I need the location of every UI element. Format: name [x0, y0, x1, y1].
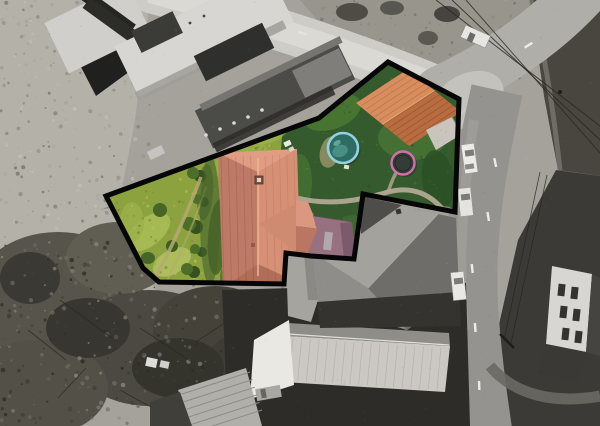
- speckle: [449, 53, 452, 56]
- speckle: [345, 111, 346, 112]
- speckle: [32, 211, 34, 213]
- speckle: [367, 22, 370, 25]
- speckle: [97, 300, 100, 303]
- speckle: [255, 145, 256, 146]
- small-tree: [141, 252, 155, 264]
- speckle: [412, 356, 414, 358]
- speckle: [378, 148, 380, 150]
- speckle: [439, 292, 441, 294]
- speckle: [152, 307, 156, 311]
- speckle: [431, 359, 432, 360]
- speckle: [60, 204, 62, 206]
- speckle: [109, 365, 111, 367]
- speckle: [68, 407, 73, 412]
- speckle: [28, 415, 32, 419]
- speckle: [518, 62, 519, 63]
- speckle: [461, 73, 462, 74]
- speckle: [138, 359, 140, 361]
- speckle: [589, 12, 591, 14]
- speckle: [316, 148, 317, 149]
- speckle: [391, 90, 393, 92]
- speckle: [98, 113, 101, 116]
- speckle: [125, 141, 126, 142]
- speckle: [394, 397, 395, 398]
- speckle: [515, 47, 517, 49]
- speckle: [48, 92, 51, 95]
- speckle: [135, 61, 136, 62]
- speckle: [9, 189, 11, 191]
- speckle: [157, 17, 158, 18]
- speckle: [210, 126, 212, 128]
- speckle: [270, 18, 271, 19]
- speckle: [275, 298, 277, 300]
- speckle: [273, 364, 274, 365]
- bush: [181, 263, 193, 275]
- speckle: [196, 225, 197, 226]
- speckle: [318, 338, 319, 339]
- speckle: [20, 70, 22, 72]
- speckle: [151, 324, 153, 326]
- speckle: [329, 175, 330, 176]
- speckle: [403, 39, 406, 42]
- speckle: [1, 368, 6, 373]
- speckle: [368, 185, 371, 188]
- speckle: [483, 193, 485, 195]
- speckle: [420, 156, 422, 158]
- speckle: [462, 22, 463, 23]
- speckle: [259, 311, 261, 313]
- aerial-photo: [0, 0, 600, 426]
- speckle: [73, 146, 75, 148]
- speckle: [212, 126, 214, 128]
- speckle: [108, 293, 112, 297]
- speckle: [375, 238, 376, 239]
- speckle: [572, 414, 573, 415]
- speckle: [86, 409, 89, 412]
- speckle: [458, 47, 459, 48]
- speckle: [157, 96, 158, 97]
- roof-vent: [189, 22, 192, 25]
- speckle: [333, 12, 335, 14]
- speckle: [123, 79, 127, 83]
- speckle: [226, 204, 227, 205]
- speckle: [13, 309, 16, 312]
- speckle: [169, 321, 172, 324]
- speckle: [484, 398, 486, 400]
- window: [557, 284, 565, 297]
- speckle: [169, 306, 171, 308]
- speckle: [18, 192, 22, 196]
- speckle: [447, 171, 449, 173]
- speckle: [94, 242, 98, 246]
- speckle: [26, 25, 28, 27]
- speckle: [317, 140, 320, 143]
- speckle: [268, 145, 270, 147]
- speckle: [4, 413, 7, 416]
- bush: [190, 244, 200, 254]
- speckle: [74, 129, 76, 131]
- speckle: [414, 181, 416, 183]
- speckle: [389, 40, 391, 42]
- speckle: [349, 167, 352, 170]
- speckle: [46, 204, 49, 207]
- speckle: [194, 295, 197, 298]
- speckle: [17, 22, 21, 26]
- speckle: [243, 33, 245, 35]
- aerial-photo-stage: [0, 0, 600, 426]
- speckle: [127, 265, 132, 270]
- speckle: [281, 160, 282, 161]
- speckle: [136, 125, 140, 129]
- speckle: [220, 350, 223, 353]
- speckle: [20, 35, 24, 39]
- speckle: [74, 281, 78, 285]
- speckle: [532, 159, 534, 161]
- speckle: [20, 176, 23, 179]
- speckle: [361, 67, 362, 68]
- speckle: [234, 135, 235, 136]
- speckle: [378, 2, 380, 4]
- speckle: [518, 291, 520, 293]
- speckle: [26, 254, 28, 256]
- speckle: [361, 89, 363, 91]
- speckle: [131, 272, 134, 275]
- speckle: [414, 270, 415, 271]
- speckle: [546, 242, 547, 243]
- speckle: [490, 4, 491, 5]
- speckle: [205, 288, 207, 290]
- speckle: [117, 176, 121, 180]
- speckle: [311, 114, 313, 116]
- speckle: [428, 21, 431, 24]
- speckle: [463, 31, 464, 32]
- speckle: [321, 287, 322, 288]
- speckle: [24, 73, 25, 74]
- speckle: [122, 183, 124, 185]
- speckle: [489, 315, 491, 317]
- speckle: [129, 96, 132, 99]
- speckle: [8, 345, 11, 348]
- speckle: [7, 97, 9, 99]
- speckle: [142, 141, 145, 144]
- speckle: [452, 49, 454, 51]
- speckle: [175, 274, 177, 276]
- speckle: [82, 269, 84, 271]
- speckle: [216, 35, 218, 37]
- speckle: [262, 261, 263, 262]
- speckle: [534, 204, 536, 206]
- chimney-cap: [257, 178, 261, 182]
- speckle: [80, 319, 82, 321]
- speckle: [119, 218, 120, 219]
- speckle: [344, 112, 346, 114]
- speckle: [101, 175, 104, 178]
- speckle: [125, 354, 127, 356]
- speckle: [382, 175, 384, 177]
- speckle: [579, 90, 580, 91]
- speckle: [81, 219, 84, 222]
- speckle: [156, 342, 158, 344]
- speckle: [215, 266, 217, 268]
- speckle: [515, 127, 517, 129]
- speckle: [48, 164, 52, 168]
- speckle: [348, 111, 350, 113]
- speckle: [438, 325, 439, 326]
- speckle: [59, 124, 63, 128]
- speckle: [138, 225, 140, 227]
- speckle: [425, 388, 427, 390]
- speckle: [137, 231, 140, 234]
- speckle: [32, 417, 36, 421]
- speckle: [348, 66, 349, 67]
- speckle: [144, 390, 146, 392]
- speckle: [18, 147, 20, 149]
- speckle: [284, 103, 285, 104]
- speckle: [90, 167, 92, 169]
- speckle: [378, 159, 379, 160]
- speckle: [120, 255, 122, 257]
- speckle: [157, 334, 160, 337]
- speckle: [321, 131, 323, 133]
- speckle: [107, 330, 109, 332]
- speckle: [403, 350, 404, 351]
- speckle: [428, 69, 429, 70]
- speckle: [12, 16, 14, 18]
- speckle: [88, 302, 91, 305]
- pool-ladder: [344, 165, 350, 170]
- speckle: [279, 325, 281, 327]
- speckle: [23, 249, 26, 252]
- speckle: [550, 316, 552, 318]
- speckle: [7, 314, 12, 319]
- speckle: [493, 115, 495, 117]
- speckle: [325, 7, 327, 9]
- speckle: [55, 278, 57, 280]
- speckle: [136, 58, 137, 59]
- speckle: [103, 296, 107, 300]
- speckle: [310, 110, 312, 112]
- speckle: [54, 230, 55, 231]
- speckle: [308, 416, 309, 417]
- bush: [380, 1, 404, 15]
- speckle: [420, 282, 421, 283]
- speckle: [38, 395, 40, 397]
- speckle: [124, 128, 126, 130]
- speckle: [2, 21, 6, 25]
- speckle: [414, 420, 416, 422]
- speckle: [11, 401, 12, 402]
- speckle: [154, 240, 157, 243]
- speckle: [435, 230, 436, 231]
- speckle: [460, 193, 461, 194]
- speckle: [540, 36, 542, 38]
- speckle: [16, 172, 20, 176]
- speckle: [5, 8, 8, 11]
- speckle: [27, 261, 30, 264]
- speckle: [184, 345, 186, 347]
- speckle: [59, 165, 61, 167]
- speckle: [363, 411, 365, 413]
- speckle: [281, 408, 283, 410]
- lane-dash: [478, 381, 481, 390]
- speckle: [23, 274, 26, 277]
- speckle: [44, 284, 46, 286]
- speckle: [202, 279, 203, 280]
- speckle: [449, 205, 450, 206]
- speckle: [91, 244, 93, 246]
- speckle: [73, 130, 75, 132]
- speckle: [164, 53, 165, 54]
- speckle: [91, 103, 92, 104]
- speckle: [487, 358, 488, 359]
- speckle: [270, 145, 272, 147]
- speckle: [62, 32, 63, 33]
- speckle: [9, 390, 13, 394]
- speckle: [362, 298, 364, 300]
- speckle: [64, 118, 67, 121]
- speckle: [46, 226, 47, 227]
- speckle: [138, 122, 139, 123]
- speckle: [163, 102, 165, 104]
- speckle: [307, 156, 308, 157]
- speckle: [189, 192, 191, 194]
- speckle: [141, 386, 145, 390]
- speckle: [141, 379, 142, 380]
- speckle: [81, 359, 85, 363]
- speckle: [515, 4, 517, 6]
- speckle: [593, 231, 594, 232]
- speckle: [445, 131, 447, 133]
- speckle: [44, 310, 46, 312]
- speckle: [185, 319, 189, 323]
- speckle: [77, 356, 81, 360]
- speckle: [106, 241, 110, 245]
- speckle: [229, 319, 231, 321]
- speckle: [193, 412, 195, 414]
- speckle: [412, 186, 414, 188]
- speckle: [469, 19, 472, 22]
- speckle: [59, 291, 60, 292]
- speckle: [21, 266, 23, 268]
- speckle: [348, 8, 350, 10]
- speckle: [8, 309, 11, 312]
- speckle: [148, 219, 151, 222]
- speckle: [528, 225, 530, 227]
- speckle: [425, 385, 427, 387]
- speckle: [450, 7, 451, 8]
- speckle: [504, 165, 505, 166]
- speckle: [415, 153, 416, 154]
- speckle: [133, 226, 136, 229]
- speckle: [143, 202, 145, 204]
- speckle: [166, 5, 167, 6]
- speckle: [44, 346, 45, 347]
- speckle: [20, 111, 22, 113]
- speckle: [167, 307, 169, 309]
- speckle: [166, 339, 171, 344]
- speckle: [27, 298, 28, 299]
- speckle: [83, 295, 84, 296]
- speckle: [380, 131, 381, 132]
- speckle: [448, 159, 450, 161]
- speckle: [164, 223, 166, 225]
- speckle: [214, 361, 216, 363]
- speckle: [80, 381, 84, 385]
- car-windshield: [454, 278, 464, 285]
- speckle: [68, 73, 71, 76]
- speckle: [517, 409, 519, 411]
- speckle: [216, 299, 218, 301]
- speckle: [131, 65, 132, 66]
- speckle: [132, 132, 134, 134]
- speckle: [109, 43, 111, 45]
- speckle: [376, 5, 379, 8]
- speckle: [167, 187, 168, 188]
- speckle: [355, 209, 358, 212]
- speckle: [36, 15, 40, 19]
- speckle: [461, 340, 462, 341]
- speckle: [343, 30, 344, 31]
- speckle: [495, 45, 496, 46]
- speckle: [112, 381, 117, 386]
- speckle: [22, 8, 25, 11]
- speckle: [127, 216, 128, 217]
- speckle: [146, 370, 149, 373]
- speckle: [253, 24, 255, 26]
- speckle: [81, 189, 82, 190]
- speckle: [90, 416, 93, 419]
- speckle: [254, 211, 255, 212]
- speckle: [31, 273, 32, 274]
- speckle: [353, 99, 355, 101]
- speckle: [335, 321, 337, 323]
- speckle: [573, 356, 574, 357]
- speckle: [370, 199, 371, 200]
- speckle: [200, 369, 202, 371]
- speckle: [156, 162, 158, 164]
- speckle: [373, 94, 374, 95]
- speckle: [214, 210, 215, 211]
- speckle: [182, 328, 184, 330]
- speckle: [587, 410, 589, 412]
- speckle: [430, 310, 432, 312]
- speckle: [474, 310, 476, 312]
- speckle: [239, 265, 240, 266]
- speckle: [73, 79, 74, 80]
- speckle: [123, 83, 125, 85]
- speckle: [470, 137, 472, 139]
- speckle: [313, 157, 314, 158]
- speckle: [261, 5, 263, 7]
- speckle: [147, 338, 148, 339]
- speckle: [295, 83, 296, 84]
- speckle: [88, 161, 92, 165]
- speckle: [22, 102, 25, 105]
- speckle: [482, 196, 484, 198]
- speckle: [117, 416, 120, 419]
- speckle: [402, 47, 405, 50]
- speckle: [579, 217, 581, 219]
- speckle: [433, 130, 434, 131]
- speckle: [1, 256, 4, 259]
- speckle: [286, 222, 287, 223]
- speckle: [308, 163, 310, 165]
- speckle: [107, 358, 108, 359]
- speckle: [343, 111, 345, 113]
- speckle: [34, 75, 37, 78]
- speckle: [25, 379, 30, 384]
- speckle: [150, 71, 151, 72]
